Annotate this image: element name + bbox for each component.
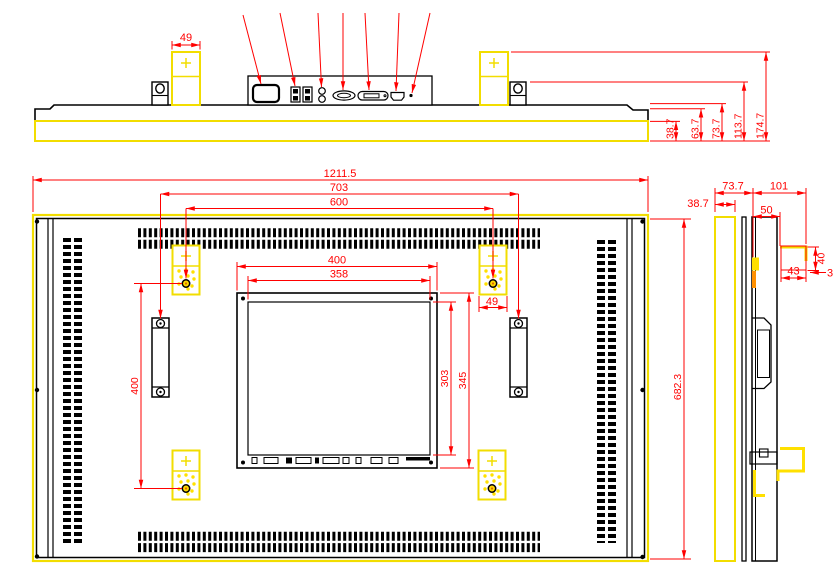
dim-label-38.7-side: 38.7 [687, 198, 708, 210]
side-bezel [715, 217, 735, 561]
dim-label-400-vertical: 400 [129, 377, 141, 395]
wall-hook-top [780, 247, 806, 261]
dim-label-63.7: 63.7 [690, 118, 702, 139]
dim-label-400: 400 [328, 255, 346, 267]
top-view-front-bezel [35, 121, 648, 141]
engineering-drawing: 49 38.7 63.7 73.7 113.7 174.7 [0, 0, 835, 572]
mount-bracket-bottom-left [173, 451, 200, 500]
front-view: 1211.5 703 600 400 358 [33, 168, 691, 561]
handle-right [510, 318, 527, 397]
side-yellow-pad [752, 258, 759, 271]
dim-label-40: 40 [816, 253, 828, 265]
dim-label-682.3: 682.3 [672, 374, 684, 400]
wall-hook-bottom [778, 449, 804, 482]
dim-label-345: 345 [457, 372, 469, 390]
top-mount-bracket-left [172, 52, 200, 105]
indicator-dot-icon [409, 94, 412, 97]
dim-label-49-top: 49 [180, 32, 192, 44]
dim-top-bracket-width: 49 [172, 32, 200, 50]
dim-label-101: 101 [770, 181, 788, 193]
dim-hook-width: 43 [781, 266, 806, 283]
dim-label-73.7: 73.7 [711, 118, 723, 139]
dim-label-38.7: 38.7 [665, 118, 677, 139]
side-panel-lines [742, 217, 746, 561]
dim-label-43: 43 [787, 266, 799, 278]
side-orange-pad [752, 271, 756, 288]
dim-label-50: 50 [760, 205, 772, 217]
top-view: 49 38.7 63.7 73.7 113.7 174.7 [35, 13, 770, 141]
dim-label-49: 49 [486, 296, 498, 308]
connector-recess [248, 76, 432, 105]
dim-label-113.7: 113.7 [733, 113, 745, 139]
side-view: 73.7 101 38.7 50 43 40 [687, 181, 833, 562]
engineering-drawing-page: 49 38.7 63.7 73.7 113.7 174.7 [0, 0, 835, 572]
dim-label-358: 358 [330, 269, 348, 281]
dim-label-600: 600 [330, 197, 348, 209]
dim-label-303: 303 [439, 370, 451, 388]
top-view-chassis-outline [35, 105, 648, 121]
dim-bezel-depth: 38.7 [687, 198, 735, 212]
dim-overall-height: 682.3 [650, 219, 691, 559]
handle-left [152, 318, 169, 397]
mount-bracket-bottom-right [479, 451, 506, 500]
dim-label-3: 3 [827, 268, 833, 280]
dim-label-174.7: 174.7 [755, 113, 767, 139]
dim-label-1211.5: 1211.5 [324, 168, 357, 180]
dim-hook-height: 40 [808, 247, 828, 271]
dim-hook-lip: 3 [810, 268, 833, 280]
top-mount-bracket-right [480, 52, 508, 105]
dim-label-703: 703 [330, 182, 348, 194]
dim-label-73.7-side: 73.7 [722, 181, 743, 193]
